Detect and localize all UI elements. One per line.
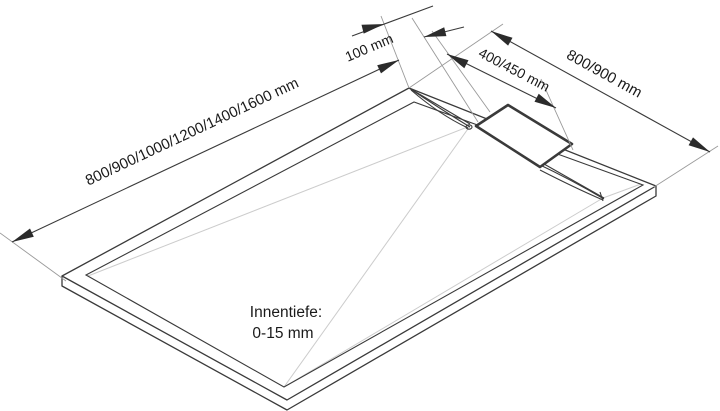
offset-arrow-left [362, 24, 385, 34]
inner-depth-caption: Innentiefe: [250, 304, 322, 321]
inner-depth-value: 0-15 mm [252, 325, 313, 342]
length-arrow-bottom [12, 229, 34, 243]
drain-arrow-left [447, 54, 469, 68]
width-arrow-right [689, 137, 710, 152]
offset-dimension-label: 100 mm [343, 30, 396, 64]
width-arrow-left [491, 31, 513, 46]
tray-top-face [62, 88, 656, 400]
offset-arrow-right [424, 27, 446, 37]
technical-drawing-page: 800/900/1000/1200/1400/1600 mm 100 mm 40… [0, 0, 720, 411]
drain-arrow-right [535, 94, 557, 108]
length-arrow-top [377, 60, 399, 73]
shower-tray-dimension-drawing: 800/900/1000/1200/1400/1600 mm 100 mm 40… [0, 0, 720, 411]
